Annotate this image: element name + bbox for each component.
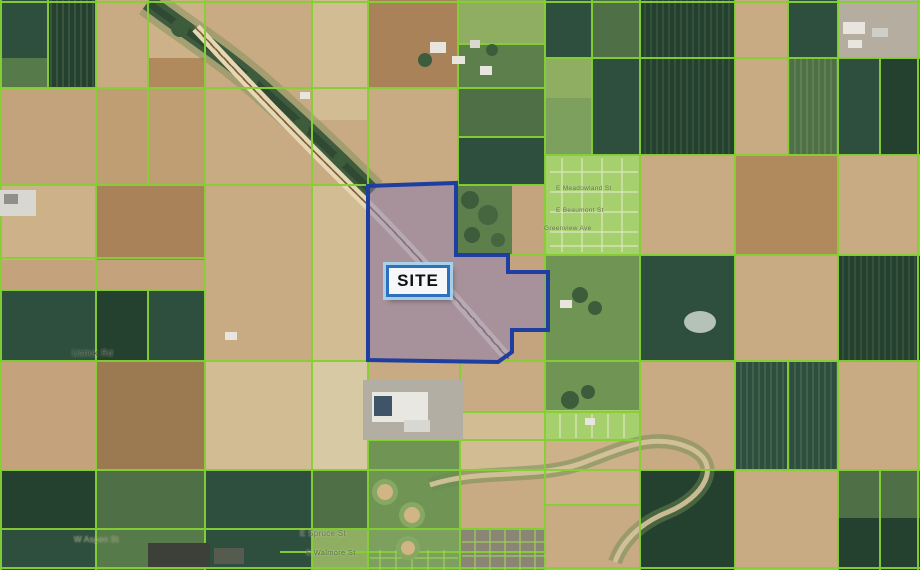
map-canvas — [0, 0, 920, 570]
aerial-parcel-map[interactable]: SITE Ustick Rd E Meadowland St E Beaumon… — [0, 0, 920, 570]
site-label: SITE — [386, 265, 450, 297]
site-label-text: SITE — [397, 271, 439, 291]
